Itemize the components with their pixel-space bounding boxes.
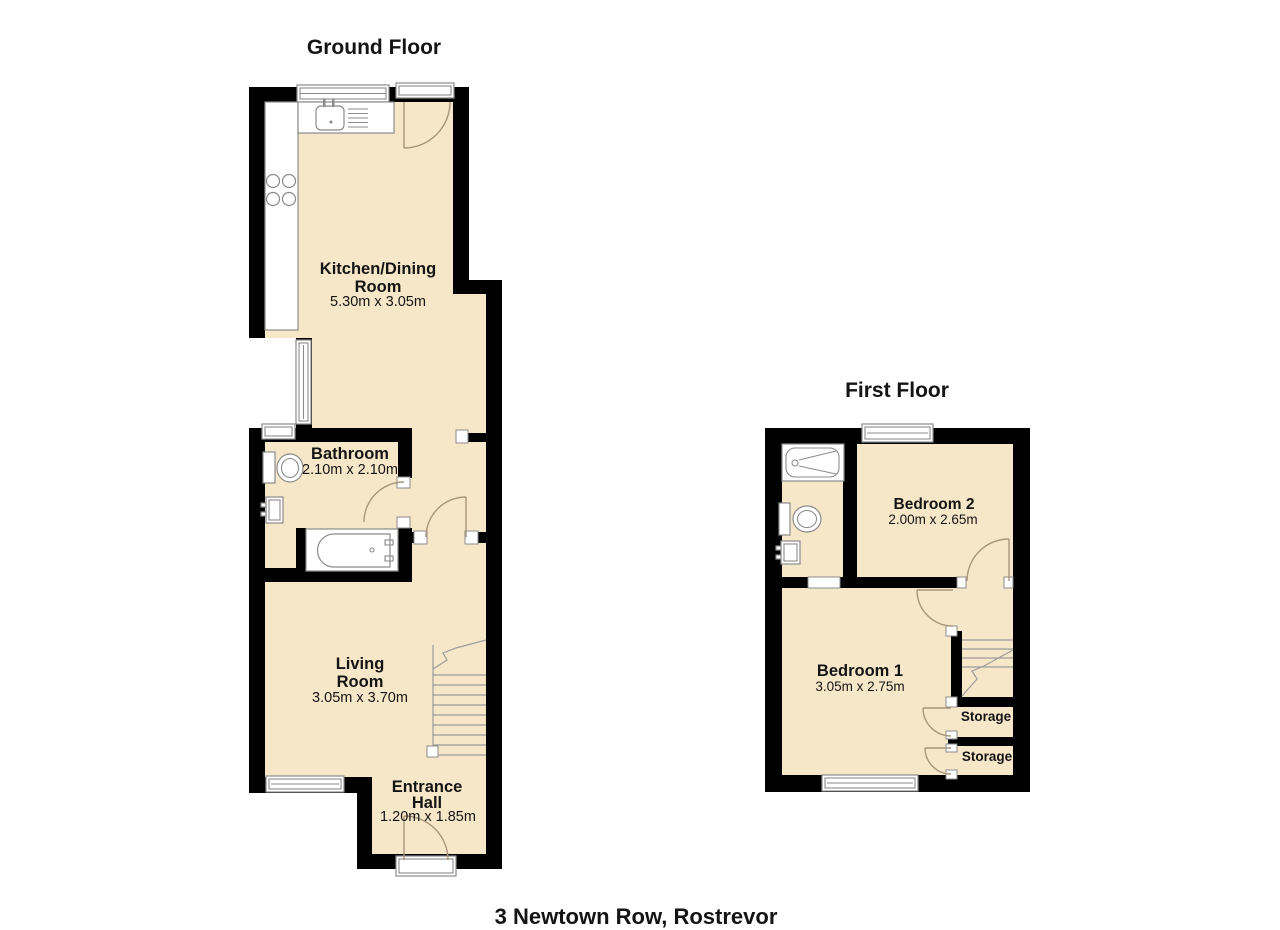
first-bathtub [782, 444, 844, 481]
svg-text:Bedroom 2: Bedroom 2 [894, 496, 975, 513]
storage1-label: Storage [961, 709, 1012, 724]
ground-floor-plan: Ground Floor Kitchen/Dining Room 5.30m x… [249, 36, 502, 876]
toilet [263, 452, 303, 483]
storage2-label: Storage [962, 749, 1013, 764]
kitchen-side-window [296, 340, 311, 424]
living-room-window [266, 776, 344, 792]
svg-text:3.05m x 2.75m: 3.05m x 2.75m [815, 679, 904, 694]
floorplan-page: Ground Floor Kitchen/Dining Room 5.30m x… [0, 0, 1280, 930]
svg-text:2.00m x 2.65m: 2.00m x 2.65m [888, 512, 977, 527]
svg-text:Room: Room [337, 673, 384, 691]
bathroom-window [262, 424, 295, 439]
svg-text:Kitchen/Dining: Kitchen/Dining [320, 260, 436, 278]
bedroom1-label: Bedroom 1 3.05m x 2.75m [815, 662, 904, 694]
bedroom2-window [862, 424, 933, 442]
property-address: 3 Newtown Row, Rostrevor [495, 904, 778, 929]
first-floor-title: First Floor [845, 379, 949, 402]
svg-text:Bathroom: Bathroom [311, 445, 389, 463]
svg-text:5.30m x 3.05m: 5.30m x 3.05m [330, 294, 426, 310]
first-toilet [779, 503, 821, 535]
kitchen-top-window [297, 85, 389, 102]
svg-text:3.05m x 3.70m: 3.05m x 3.70m [312, 690, 408, 706]
first-floor-plan: First Floor Bedroom 2 2.00m x 2.65m Bedr… [765, 379, 1030, 792]
bathtub [306, 529, 398, 571]
bedroom2-label: Bedroom 2 2.00m x 2.65m [888, 496, 977, 527]
svg-text:1.20m x 1.85m: 1.20m x 1.85m [380, 809, 476, 825]
svg-text:2.10m x 2.10m: 2.10m x 2.10m [302, 462, 398, 478]
first-floor-area [782, 444, 1013, 775]
dining-opening-jamb [456, 430, 468, 443]
bathroom-label: Bathroom 2.10m x 2.10m [302, 445, 398, 478]
ground-floor-title: Ground Floor [307, 36, 441, 59]
svg-text:Bedroom 1: Bedroom 1 [817, 662, 903, 680]
svg-text:Living: Living [336, 655, 385, 673]
floorplan-drawing: Ground Floor Kitchen/Dining Room 5.30m x… [0, 0, 1280, 930]
first-bathroom-door [808, 577, 840, 588]
bedroom1-window [822, 775, 918, 791]
